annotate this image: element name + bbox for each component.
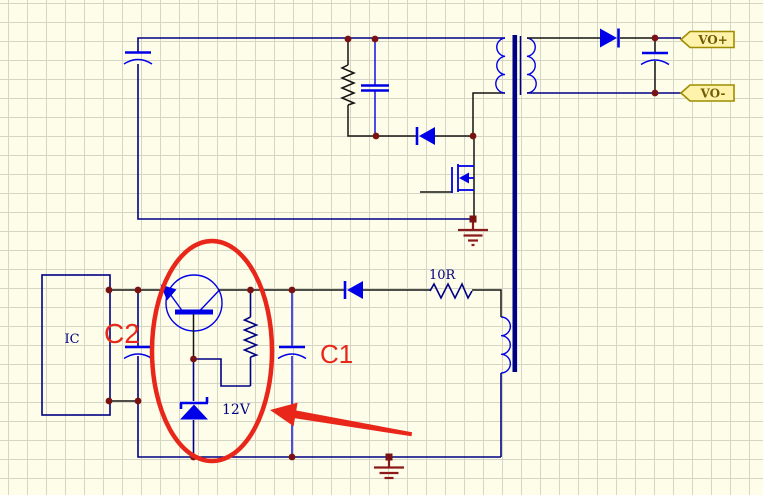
clamp-diode bbox=[417, 127, 473, 145]
resistor-10r: 10R bbox=[429, 268, 472, 298]
power-mosfet bbox=[420, 164, 474, 193]
aux-rectifier-diode bbox=[345, 281, 363, 299]
port-vo-plus-label: VO+ bbox=[697, 33, 728, 47]
resistor-10r-label: 10R bbox=[429, 268, 457, 283]
c2-branch-and-bottom-rail bbox=[138, 290, 501, 457]
zener-voltage-label: 12V bbox=[222, 402, 251, 418]
aux-winding bbox=[501, 317, 510, 373]
annotation-c2: C2 bbox=[104, 318, 140, 349]
snubber-resistor bbox=[342, 39, 416, 136]
zener-diode: 12V bbox=[180, 359, 251, 457]
port-vo-minus-label: VO- bbox=[700, 87, 726, 101]
transistor bbox=[161, 275, 223, 359]
capacitor-c1 bbox=[278, 290, 306, 457]
collector-rail-wires bbox=[219, 290, 501, 457]
output-diode bbox=[600, 29, 619, 48]
primary-return-wire bbox=[473, 93, 505, 136]
port-vo-plus: VO+ bbox=[681, 32, 734, 48]
highlight-ellipse bbox=[152, 241, 272, 461]
ic-block: IC bbox=[42, 275, 110, 415]
base-feedback-wire bbox=[194, 359, 251, 386]
schematic-canvas: VO+ VO- IC bbox=[0, 0, 763, 495]
secondary-winding bbox=[527, 38, 536, 93]
primary-ground-symbol bbox=[458, 219, 488, 245]
transformer-core bbox=[513, 35, 518, 372]
transformer bbox=[496, 35, 536, 373]
feedback-resistor bbox=[245, 290, 257, 386]
primary-winding bbox=[496, 38, 505, 93]
circuit-schematic: VO+ VO- IC bbox=[0, 0, 763, 495]
secondary-output-wires bbox=[527, 38, 681, 93]
port-vo-minus: VO- bbox=[681, 85, 734, 101]
ic-label: IC bbox=[64, 332, 79, 347]
annotation-c1: C1 bbox=[320, 339, 353, 369]
input-bulk-capacitor bbox=[124, 53, 152, 65]
snubber-capacitor bbox=[361, 39, 389, 136]
